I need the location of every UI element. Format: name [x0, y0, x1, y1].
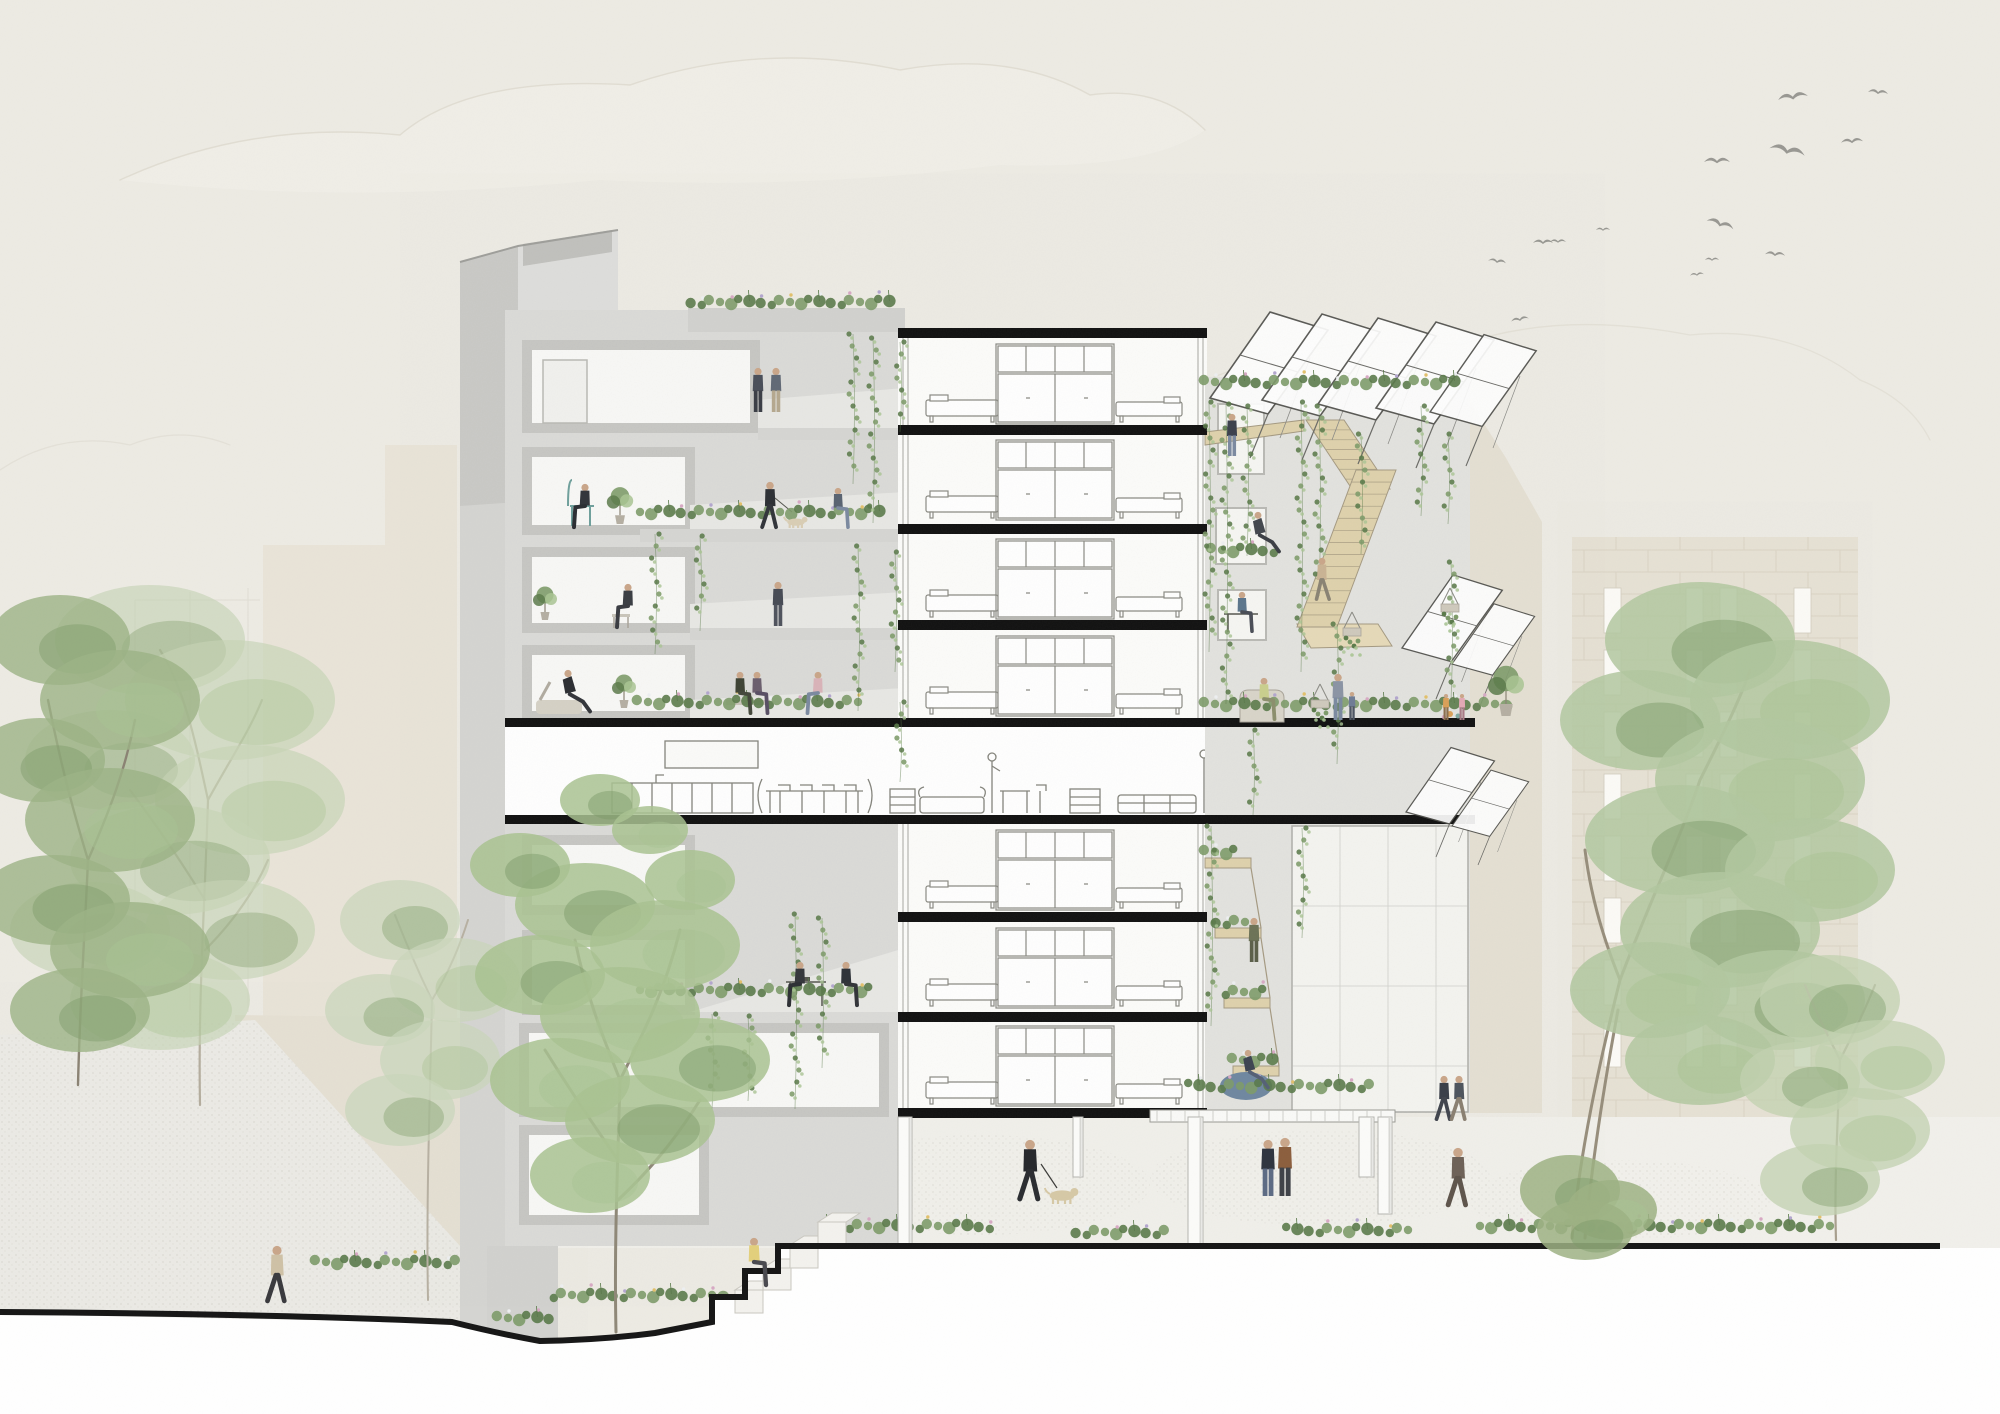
paper-grain-overlay [0, 0, 2000, 1414]
scene-canvas [0, 0, 2000, 1414]
architectural-section-illustration [0, 0, 2000, 1414]
